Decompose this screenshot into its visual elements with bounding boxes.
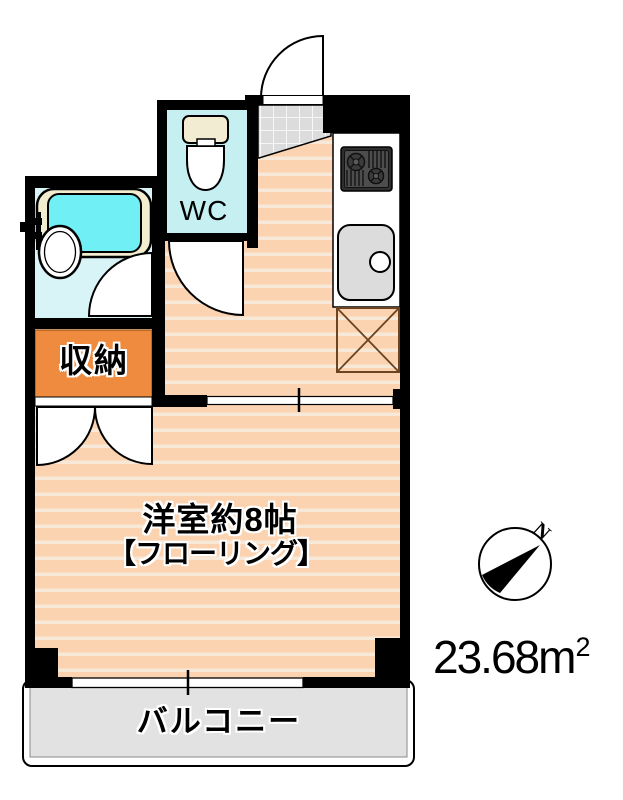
balcony-label: バルコニー [137,706,301,737]
kitchen-sink-icon [338,225,394,300]
wc-label: WC [180,197,229,225]
area-exponent: 2 [575,632,590,662]
main-room-label-line2: 【フローリング】 [108,540,324,568]
entrance-threshold [263,96,323,105]
closet-label: 収納 [59,344,129,377]
main-room-label-line1: 洋室約8帖 [142,503,297,536]
washbasin-icon [39,226,81,278]
area-label: 23.68m2 [433,634,590,680]
area-value: 23.68 [433,631,538,683]
stove-icon [341,147,392,191]
floorplan: WC 収納 洋室約8帖 【フローリング】 バルコニー 23.68m2 N [0,0,623,800]
toilet-icon [183,116,228,190]
kitchen-counter [333,133,400,307]
closet-threshold [35,397,152,406]
exterior-area [0,0,157,176]
area-unit: m [538,631,574,683]
entrance-door-icon [261,36,323,98]
